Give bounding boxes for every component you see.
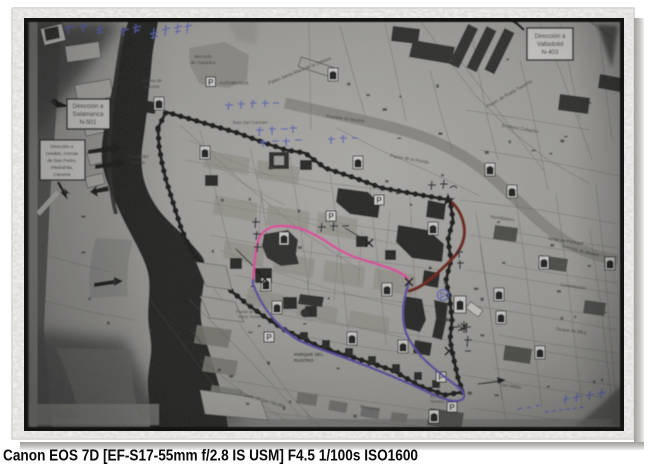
svg-text:Canon EOS 7D [EF-S17-55mm f/2.: Canon EOS 7D [EF-S17-55mm f/2.8 IS USM] … xyxy=(3,448,418,465)
